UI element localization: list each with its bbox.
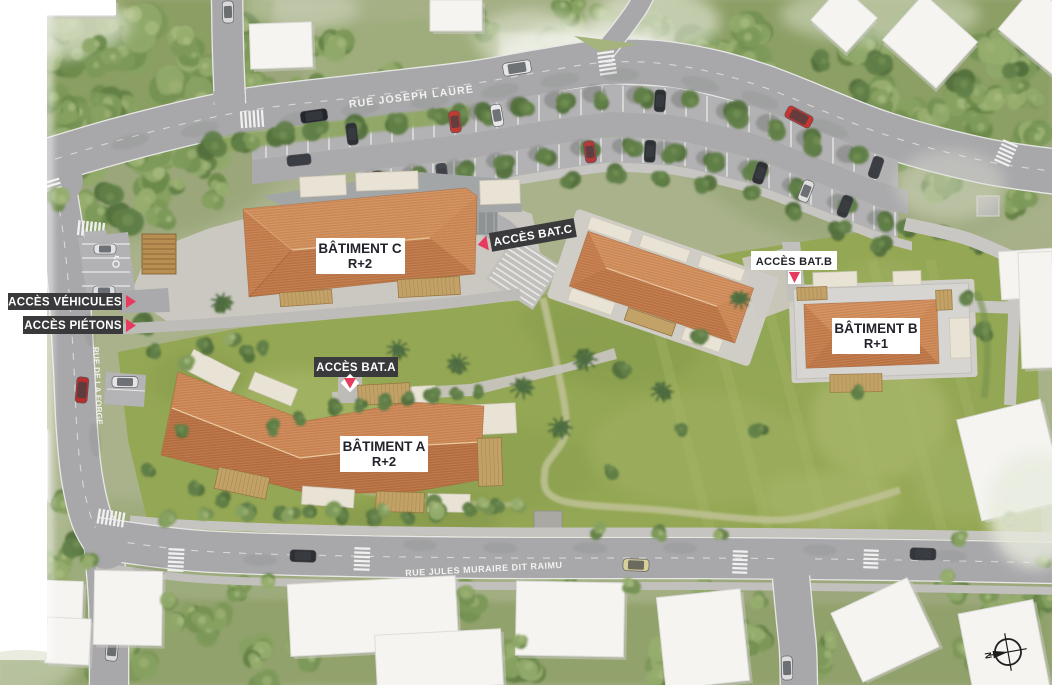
svg-text:ACCÈS VÉHICULES: ACCÈS VÉHICULES bbox=[8, 296, 122, 309]
svg-text:R+2: R+2 bbox=[348, 256, 372, 271]
svg-text:BÂTIMENT C: BÂTIMENT C bbox=[318, 241, 401, 256]
svg-text:BÂTIMENT A: BÂTIMENT A bbox=[343, 439, 426, 454]
svg-text:ACCÈS PIÉTONS: ACCÈS PIÉTONS bbox=[24, 319, 122, 332]
svg-text:R+1: R+1 bbox=[864, 336, 888, 351]
svg-text:ACCÈS BAT.A: ACCÈS BAT.A bbox=[316, 361, 396, 374]
svg-text:BÂTIMENT B: BÂTIMENT B bbox=[834, 321, 917, 336]
svg-text:ACCÈS BAT.B: ACCÈS BAT.B bbox=[756, 255, 832, 268]
svg-text:R+2: R+2 bbox=[372, 454, 396, 469]
